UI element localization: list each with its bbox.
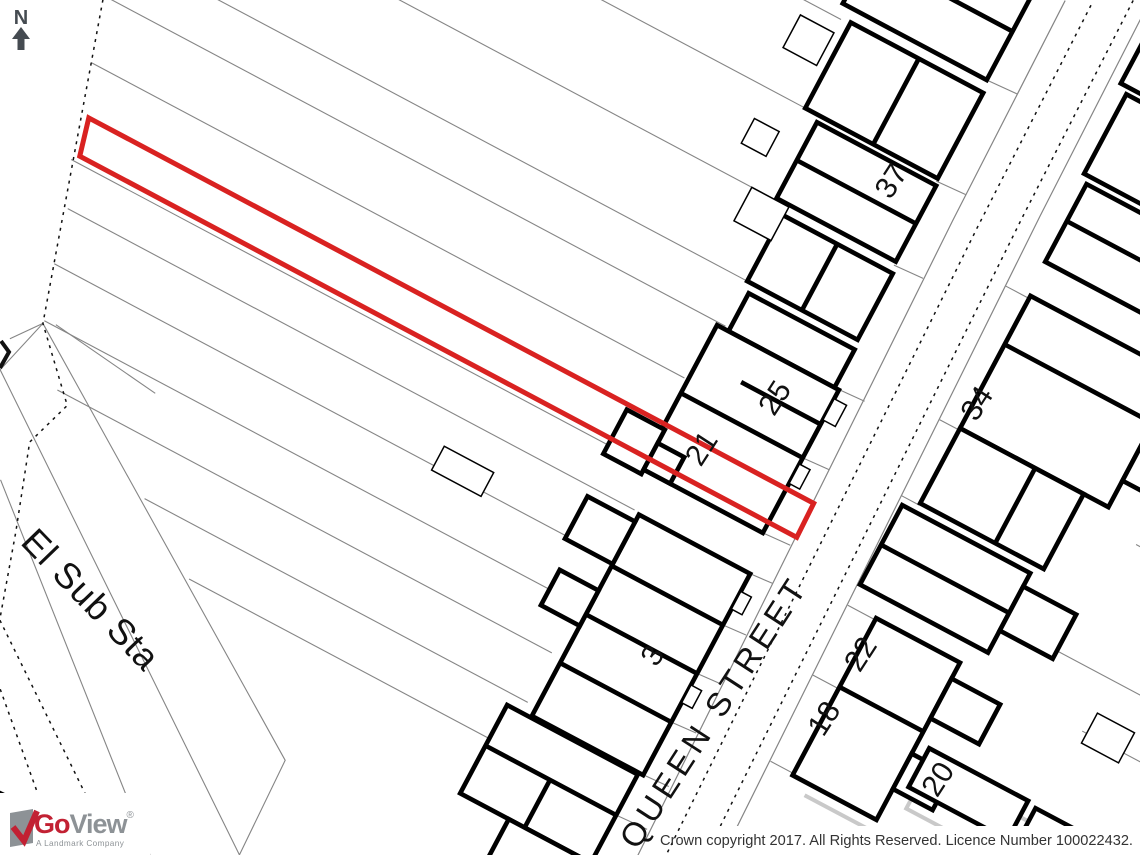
- copyright-text: Crown copyright 2017. All Rights Reserve…: [660, 833, 1140, 849]
- logo-wordmark: GoView®: [34, 811, 134, 838]
- goview-logo: GoView® A Landmark Company: [0, 793, 150, 855]
- logo-text-go: Go: [34, 809, 70, 839]
- map-canvas: 37 25 21 34 3 22 18 20 QUEEN STREET El S…: [0, 0, 1140, 855]
- copyright-bar: Crown copyright 2017. All Rights Reserve…: [682, 826, 1140, 855]
- registered-mark: ®: [127, 810, 134, 821]
- edge-clipped-glyph: [0, 341, 9, 368]
- substation-label: El Sub Sta: [14, 520, 169, 678]
- logo-text-view: View: [70, 809, 127, 839]
- map-rotated-layer: 37 25 21 34 3 22 18 20 QUEEN STREET El S…: [0, 0, 1140, 855]
- north-arrow-icon: [12, 27, 30, 50]
- boundary-dashed-lines: [0, 0, 467, 855]
- north-label: N: [14, 7, 28, 29]
- map-viewport: 37 25 21 34 3 22 18 20 QUEEN STREET El S…: [0, 0, 1140, 855]
- north-arrow: N: [12, 7, 30, 50]
- logo-tagline: A Landmark Company: [36, 839, 124, 848]
